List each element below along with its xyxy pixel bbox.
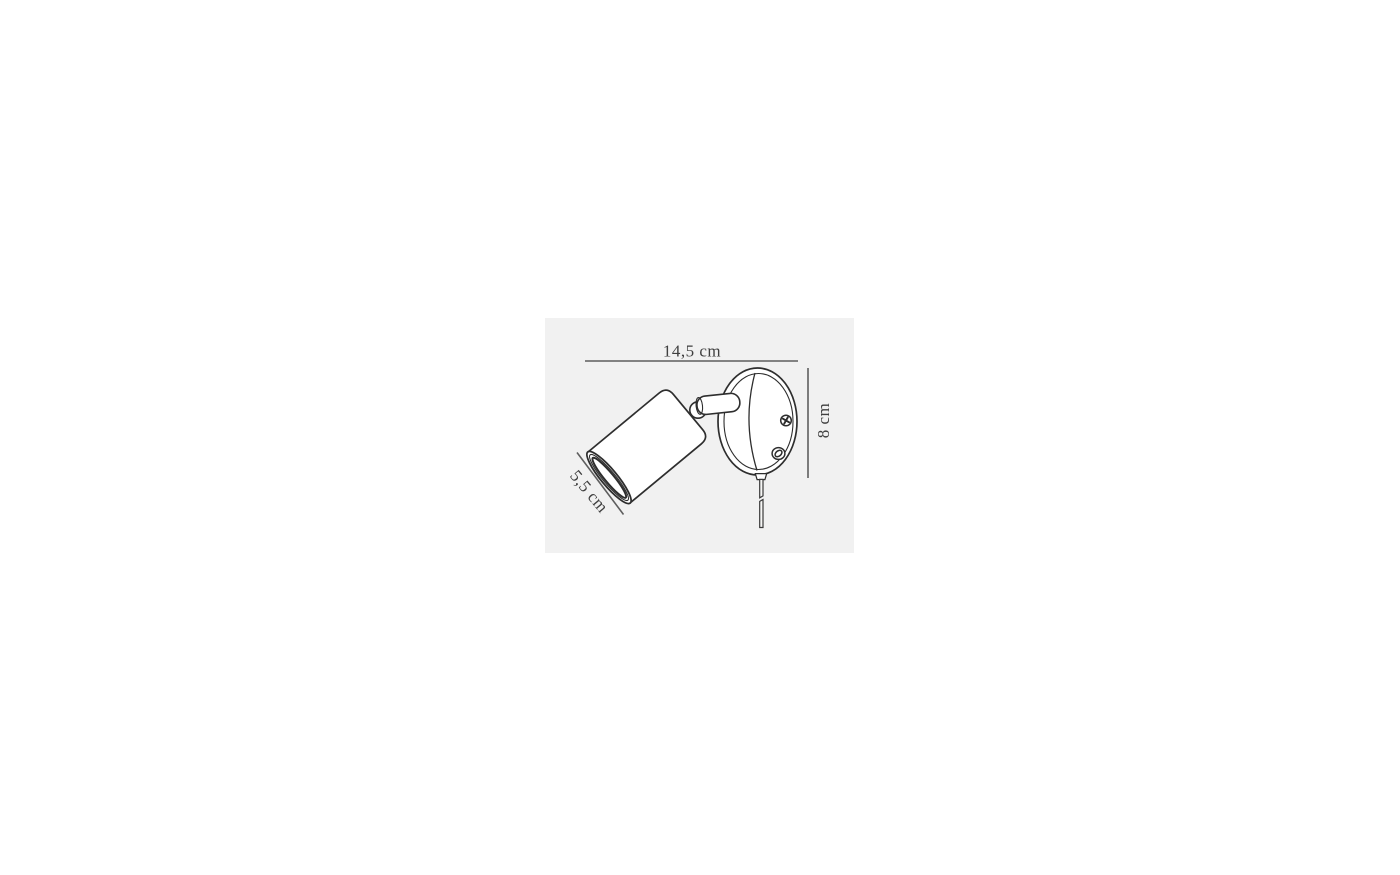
wall-plate xyxy=(718,368,797,528)
height-dimension-label: 8 cm xyxy=(814,403,833,439)
page-background: 14,5 cm 8 cm 5,5 cm xyxy=(0,0,1400,875)
switch-knob xyxy=(772,448,785,460)
cable-gland xyxy=(755,474,766,480)
product-image-panel: 14,5 cm 8 cm 5,5 cm xyxy=(545,318,854,553)
power-cable-upper xyxy=(760,479,763,497)
lamp-dimension-drawing: 14,5 cm 8 cm 5,5 cm xyxy=(545,318,854,553)
mounting-screw-icon xyxy=(781,415,792,426)
width-dimension-label: 14,5 cm xyxy=(663,342,721,361)
mounting-arm xyxy=(695,393,741,416)
knob-outer xyxy=(772,448,785,460)
power-cable-lower xyxy=(760,500,763,528)
